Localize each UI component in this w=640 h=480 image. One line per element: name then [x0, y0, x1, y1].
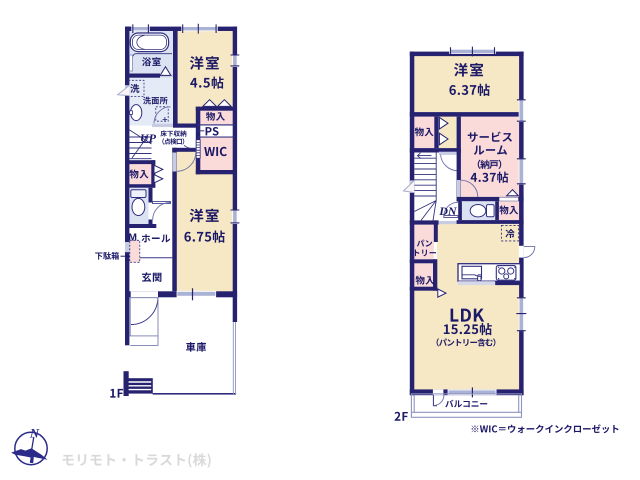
svg-text:DN: DN: [438, 204, 458, 218]
svg-text:N: N: [29, 427, 40, 441]
svg-text:UP: UP: [140, 131, 157, 145]
svg-text:M: M: [128, 232, 137, 244]
